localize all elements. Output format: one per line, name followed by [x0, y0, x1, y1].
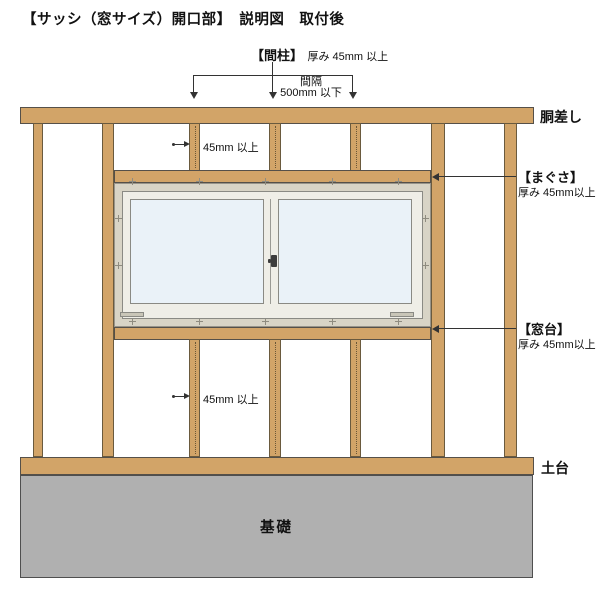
lintel-spec: 厚み 45mm以上 [518, 184, 596, 200]
arrow-line [352, 75, 353, 93]
sill-plate-label: 土台 [541, 458, 569, 478]
screw-mark-icon [129, 178, 136, 185]
mabashira-stud-upper-1 [189, 123, 200, 171]
arrow-down-icon [349, 92, 357, 99]
arrow-down-icon [190, 92, 198, 99]
arrow-line [193, 75, 194, 93]
stud-width-dim-lower: 45mm 以上 [203, 391, 259, 407]
screw-mark-icon [115, 262, 122, 269]
annotation-connector [272, 62, 273, 75]
sash-bottom-step [390, 312, 414, 317]
stud-left-edge [33, 123, 43, 457]
mabashira-stud-lower-2 [269, 339, 281, 457]
screw-mark-icon [262, 318, 269, 325]
mabashira-stud-upper-3 [350, 123, 361, 171]
glass-pane-right [278, 199, 412, 304]
screw-mark-icon [129, 318, 136, 325]
arrow-line [272, 75, 273, 93]
arrow-right-icon [184, 393, 190, 399]
foundation-block: 基礎 [20, 475, 533, 578]
girth-beam [20, 107, 534, 124]
mabashira-label: 【間柱】 [251, 48, 303, 63]
mabashira-stud-upper-2 [269, 123, 281, 171]
crescent-lock-icon [268, 259, 271, 263]
mabashira-spec: 厚み 45mm 以上 [307, 51, 388, 63]
window-sill-spec: 厚み 45mm以上 [518, 336, 596, 352]
stud-right-edge [504, 123, 517, 457]
screw-mark-icon [329, 318, 336, 325]
screw-mark-icon [395, 178, 402, 185]
spacing-label-line2: 500mm 以下 [275, 88, 347, 99]
annotation-bracket-line [193, 75, 353, 76]
glass-pane-left [130, 199, 264, 304]
mabashira-stud-lower-3 [350, 339, 361, 457]
spacing-annotation: 間隔 500mm 以下 [275, 77, 347, 99]
mabashira-stud-lower-1 [189, 339, 200, 457]
screw-mark-icon [115, 215, 122, 222]
diagram-title: 【サッシ（窓サイズ）開口部】 説明図 取付後 [22, 8, 344, 29]
screw-mark-icon [395, 318, 402, 325]
sill-plate-beam [20, 457, 534, 475]
girth-beam-label: 胴差し [540, 107, 582, 127]
screw-mark-icon [329, 178, 336, 185]
screw-mark-icon [196, 318, 203, 325]
sash-bottom-step [120, 312, 144, 317]
screw-mark-icon [196, 178, 203, 185]
foundation-label: 基礎 [260, 516, 293, 537]
meeting-stile-line [270, 199, 271, 304]
stud-window-left [102, 123, 114, 457]
annotation-line [438, 176, 516, 177]
lintel-beam [114, 170, 431, 183]
crescent-lock-icon [271, 255, 277, 267]
annotation-line [438, 328, 516, 329]
screw-mark-icon [262, 178, 269, 185]
screw-mark-icon [422, 215, 429, 222]
arrow-left-icon [432, 173, 439, 181]
arrow-right-icon [184, 141, 190, 147]
diagram-canvas: 【サッシ（窓サイズ）開口部】 説明図 取付後 基礎 [0, 0, 600, 600]
stud-width-dim-upper: 45mm 以上 [203, 139, 259, 155]
arrow-left-icon [432, 325, 439, 333]
screw-mark-icon [422, 262, 429, 269]
